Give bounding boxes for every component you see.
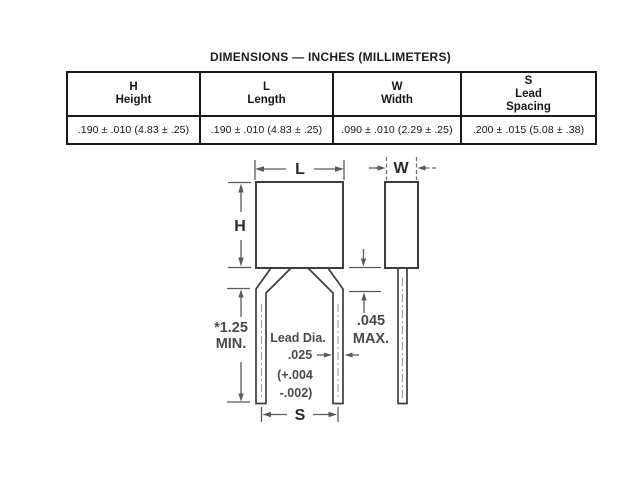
width-label: W bbox=[393, 160, 409, 177]
component-dimension-diagram: L H W .045 MAX. bbox=[198, 152, 454, 428]
length-label: L bbox=[295, 161, 305, 178]
value-height: .190 ± .010 (4.83 ± .25) bbox=[67, 116, 200, 144]
col-name-length: Length bbox=[201, 94, 332, 107]
col-header-length: L Length bbox=[200, 72, 333, 116]
lead-dia-tol-minus: -.002) bbox=[280, 386, 313, 400]
lead-length-value-label: *1.25 bbox=[214, 320, 248, 336]
standoff-value-label: .045 bbox=[357, 313, 385, 329]
lead-dia-title: Lead Dia. bbox=[270, 331, 326, 345]
col-symbol-l: L bbox=[201, 81, 332, 94]
col-name-width: Width bbox=[334, 94, 460, 107]
side-view-lead bbox=[398, 268, 407, 404]
col-symbol-s: S bbox=[462, 75, 595, 88]
value-length: .190 ± .010 (4.83 ± .25) bbox=[200, 116, 333, 144]
lead-spacing-label: S bbox=[295, 407, 306, 424]
dimension-standoff-045-max: .045 MAX. bbox=[349, 249, 389, 347]
col-header-height: H Height bbox=[67, 72, 200, 116]
col-symbol-h: H bbox=[68, 81, 199, 94]
col-header-lead-spacing: S Lead Spacing bbox=[461, 72, 596, 116]
dimension-width: W bbox=[369, 157, 438, 180]
col-name-lead-spacing: Lead Spacing bbox=[462, 88, 595, 114]
dimension-lead-length-min: *1.25 MIN. bbox=[214, 289, 250, 403]
height-label: H bbox=[234, 218, 246, 235]
col-header-width: W Width bbox=[333, 72, 461, 116]
dimension-length: L bbox=[255, 160, 344, 180]
value-lead-spacing: .200 ± .015 (5.08 ± .38) bbox=[461, 116, 596, 144]
value-width: .090 ± .010 (2.29 ± .25) bbox=[333, 116, 461, 144]
header-row: H Height L Length W Width S Lead Spacing bbox=[67, 72, 596, 116]
table-title: DIMENSIONS — INCHES (MILLIMETERS) bbox=[66, 50, 595, 64]
datasheet-dimensions-page: DIMENSIONS — INCHES (MILLIMETERS) H Heig… bbox=[0, 0, 640, 480]
dimensions-table: H Height L Length W Width S Lead Spacing… bbox=[66, 71, 597, 145]
value-row: .190 ± .010 (4.83 ± .25) .190 ± .010 (4.… bbox=[67, 116, 596, 144]
lead-dia-tol-plus: (+.004 bbox=[277, 368, 313, 382]
front-view-body bbox=[256, 182, 343, 268]
annotation-lead-diameter: Lead Dia. .025 (+.004 -.002) bbox=[270, 331, 359, 400]
dimension-height: H bbox=[228, 183, 251, 268]
lead-length-min-label: MIN. bbox=[216, 336, 247, 352]
side-view-body bbox=[385, 182, 418, 268]
lead-dia-value: .025 bbox=[288, 348, 312, 362]
col-symbol-w: W bbox=[334, 81, 460, 94]
col-name-height: Height bbox=[68, 94, 199, 107]
standoff-max-label: MAX. bbox=[353, 331, 389, 347]
dimension-lead-spacing: S bbox=[262, 407, 339, 424]
